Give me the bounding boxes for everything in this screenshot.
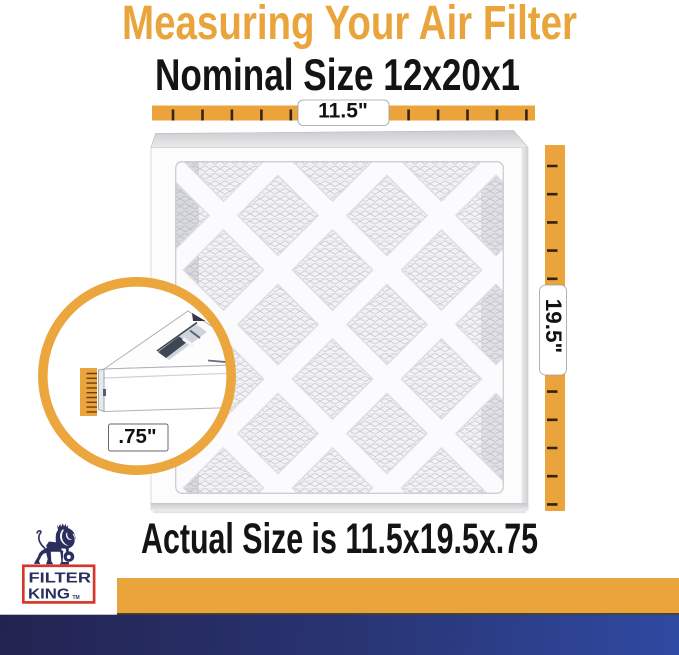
svg-text:FILTER: FILTER: [29, 570, 92, 586]
svg-text:11.5": 11.5": [318, 100, 368, 123]
svg-text:19.5": 19.5": [541, 299, 566, 353]
svg-text:KING: KING: [28, 587, 70, 603]
svg-text:Nominal Size 12x20x1: Nominal Size 12x20x1: [155, 51, 520, 100]
svg-text:.75": .75": [118, 425, 156, 448]
svg-text:Measuring Your Air Filter: Measuring Your Air Filter: [122, 0, 577, 50]
svg-text:Actual Size is 11.5x19.5x.75: Actual Size is 11.5x19.5x.75: [141, 515, 538, 563]
svg-text:TM: TM: [73, 595, 80, 601]
